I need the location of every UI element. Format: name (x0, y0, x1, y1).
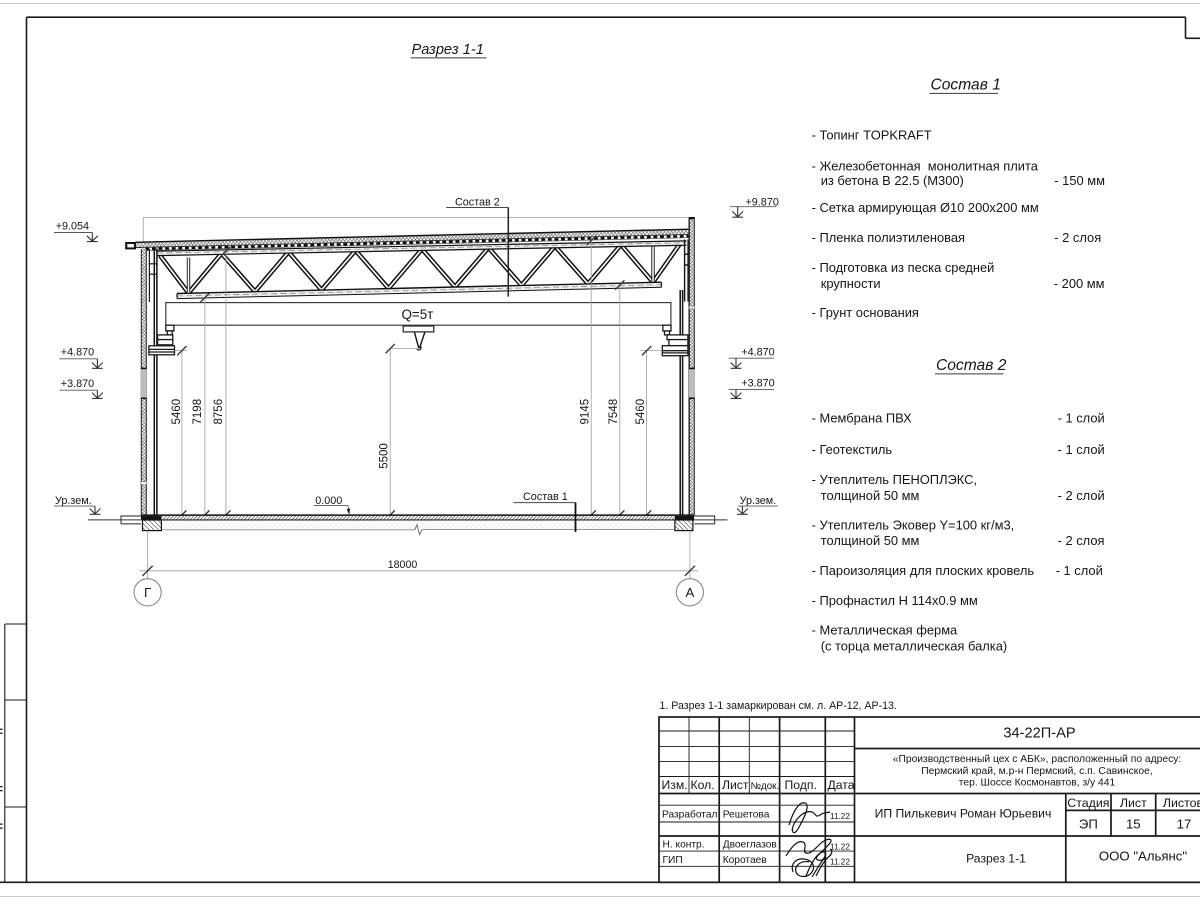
svg-text:+3.870: +3.870 (61, 378, 94, 390)
svg-text:Состав 2: Состав 2 (455, 196, 500, 208)
svg-text:- 2 слоя: - 2 слоя (1058, 533, 1105, 548)
svg-text:1. Разрез 1-1 замаркирован см.: 1. Разрез 1-1 замаркирован см. л. АР-12,… (660, 700, 897, 712)
svg-text:Разрез 1-1: Разрез 1-1 (966, 852, 1026, 866)
svg-text:Листов: Листов (1163, 796, 1200, 810)
svg-text:- 1 слой: - 1 слой (1056, 563, 1103, 578)
svg-text:18000: 18000 (388, 559, 418, 571)
svg-text:+9.054: +9.054 (56, 221, 89, 233)
svg-text:34-22П-АР: 34-22П-АР (1003, 726, 1075, 742)
svg-text:Стадия: Стадия (1067, 796, 1109, 810)
svg-text:- Сетка армирующая Ø10 200x200: - Сетка армирующая Ø10 200x200 мм (812, 200, 1039, 215)
svg-text:Кол.: Кол. (691, 778, 715, 792)
svg-text:17: 17 (1177, 817, 1192, 832)
svg-text:8756: 8756 (213, 399, 225, 425)
svg-text:- 1 слой: - 1 слой (1058, 410, 1105, 425)
svg-text:+4.870: +4.870 (741, 347, 774, 359)
svg-text:Состав 1: Состав 1 (931, 76, 1001, 93)
svg-text:- 2 слоя: - 2 слоя (1054, 230, 1101, 245)
svg-text:+4.870: +4.870 (61, 347, 94, 359)
svg-text:5500: 5500 (379, 443, 391, 469)
svg-text:- Мембрана ПВХ: - Мембрана ПВХ (812, 410, 913, 425)
svg-text:- Утеплитель ПЕНОПЛЭКС,: - Утеплитель ПЕНОПЛЭКС, (812, 472, 977, 487)
svg-text:Изм.: Изм. (662, 778, 688, 792)
svg-text:Лист: Лист (722, 778, 749, 792)
svg-text:А: А (686, 585, 695, 600)
svg-text:7198: 7198 (192, 399, 204, 425)
svg-text:- 150 мм: - 150 мм (1054, 173, 1105, 188)
svg-text:- 1 слой: - 1 слой (1058, 442, 1105, 457)
svg-text:11.22: 11.22 (830, 812, 850, 821)
svg-text:11.22: 11.22 (830, 843, 850, 852)
svg-text:Пермский край, м.р-н Пермский,: Пермский край, м.р-н Пермский, с.п. Сави… (921, 766, 1152, 777)
svg-text:из бетона В 22.5 (М300): из бетона В 22.5 (М300) (821, 173, 964, 188)
svg-text:15: 15 (1126, 817, 1141, 832)
svg-text:- 200 мм: - 200 мм (1054, 276, 1105, 291)
svg-text:Состав 2: Состав 2 (936, 357, 1007, 374)
svg-text:- Профнастил Н 114x0.9 мм: - Профнастил Н 114x0.9 мм (812, 593, 978, 608)
svg-text:толщиной 50 мм: толщиной 50 мм (821, 488, 920, 503)
svg-text:- Пленка полиэтиленовая: - Пленка полиэтиленовая (812, 230, 965, 245)
svg-text:Дата: Дата (828, 778, 855, 792)
svg-text:5460: 5460 (171, 399, 183, 425)
svg-text:- Утеплитель Эковер Y=100 кг/м: - Утеплитель Эковер Y=100 кг/м3, (812, 518, 1015, 533)
svg-text:(с торца металлическая балка): (с торца металлическая балка) (821, 638, 1007, 653)
svg-text:ЭП: ЭП (1079, 817, 1098, 832)
svg-text:Разрез 1-1: Разрез 1-1 (412, 42, 484, 58)
svg-text:Н. контр.: Н. контр. (663, 840, 705, 851)
svg-text:- Геотекстиль: - Геотекстиль (812, 442, 893, 457)
svg-text:- 2 слой: - 2 слой (1058, 488, 1105, 503)
svg-text:крупности: крупности (821, 276, 881, 291)
svg-text:11.22: 11.22 (830, 858, 850, 867)
svg-text:№док.: №док. (751, 781, 780, 792)
svg-text:Q=5т: Q=5т (402, 307, 434, 322)
svg-text:Разработал: Разработал (662, 809, 718, 821)
svg-text:Г: Г (144, 585, 151, 600)
svg-text:Двоеглазов: Двоеглазов (723, 840, 777, 851)
svg-text:- Грунт основания: - Грунт основания (812, 305, 919, 320)
svg-text:Ур.зем.: Ур.зем. (55, 495, 92, 507)
svg-text:толщиной 50 мм: толщиной 50 мм (821, 533, 920, 548)
svg-text:- Железобетонная монолитная п: - Железобетонная монолитная плита (812, 158, 1039, 173)
svg-text:9145: 9145 (579, 399, 591, 425)
svg-text:тер. Шоссе Космонавтов, з/у 44: тер. Шоссе Космонавтов, з/у 441 (959, 778, 1116, 789)
svg-text:Коротаев: Коротаев (723, 855, 767, 866)
svg-text:Подп.: Подп. (785, 778, 817, 792)
svg-text:Решетова: Решетова (723, 810, 770, 821)
svg-text:ООО "Альянс": ООО "Альянс" (1099, 849, 1187, 864)
svg-text:- Пароизоляция для плоских кро: - Пароизоляция для плоских кровель (812, 563, 1035, 578)
svg-text:Лист: Лист (1120, 796, 1147, 810)
svg-text:- Подготовка из песка средней: - Подготовка из песка средней (812, 260, 995, 275)
svg-text:«Производственный цех с АБК»,: «Производственный цех с АБК», расположен… (893, 754, 1182, 765)
svg-text:ИП Пилькевич Роман Юрьевич: ИП Пилькевич Роман Юрьевич (875, 807, 1052, 821)
svg-text:7548: 7548 (608, 399, 620, 425)
svg-text:Ур.зем.: Ур.зем. (740, 495, 777, 507)
svg-text:5460: 5460 (635, 399, 647, 425)
svg-text:- Металлическая ферма: - Металлическая ферма (812, 623, 958, 638)
svg-text:- Топинг TOPKRAFT: - Топинг TOPKRAFT (812, 128, 932, 143)
svg-text:Состав 1: Состав 1 (523, 491, 568, 503)
svg-text:+3.870: +3.870 (741, 378, 774, 390)
svg-text:ГИП: ГИП (663, 855, 683, 866)
